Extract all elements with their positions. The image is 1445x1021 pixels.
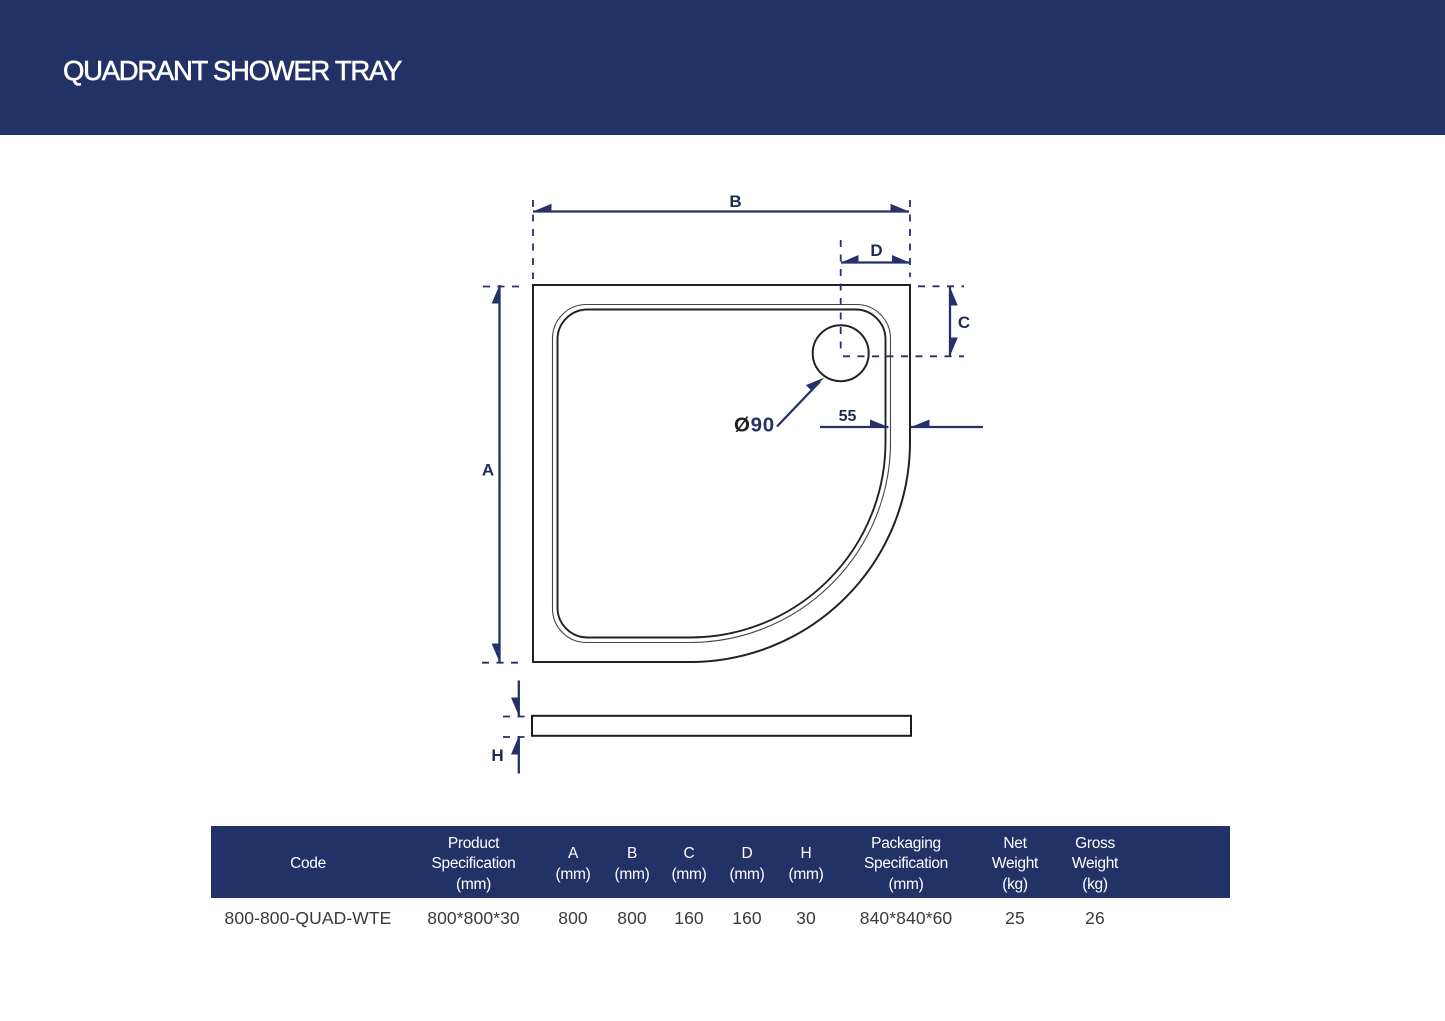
svg-text:H: H: [491, 746, 503, 765]
svg-text:C: C: [958, 313, 970, 332]
svg-text:B: B: [729, 192, 741, 211]
svg-text:A: A: [482, 461, 494, 480]
svg-text:55: 55: [839, 408, 857, 425]
svg-text:D: D: [870, 241, 882, 260]
svg-text:Ø90: Ø90: [734, 414, 775, 437]
